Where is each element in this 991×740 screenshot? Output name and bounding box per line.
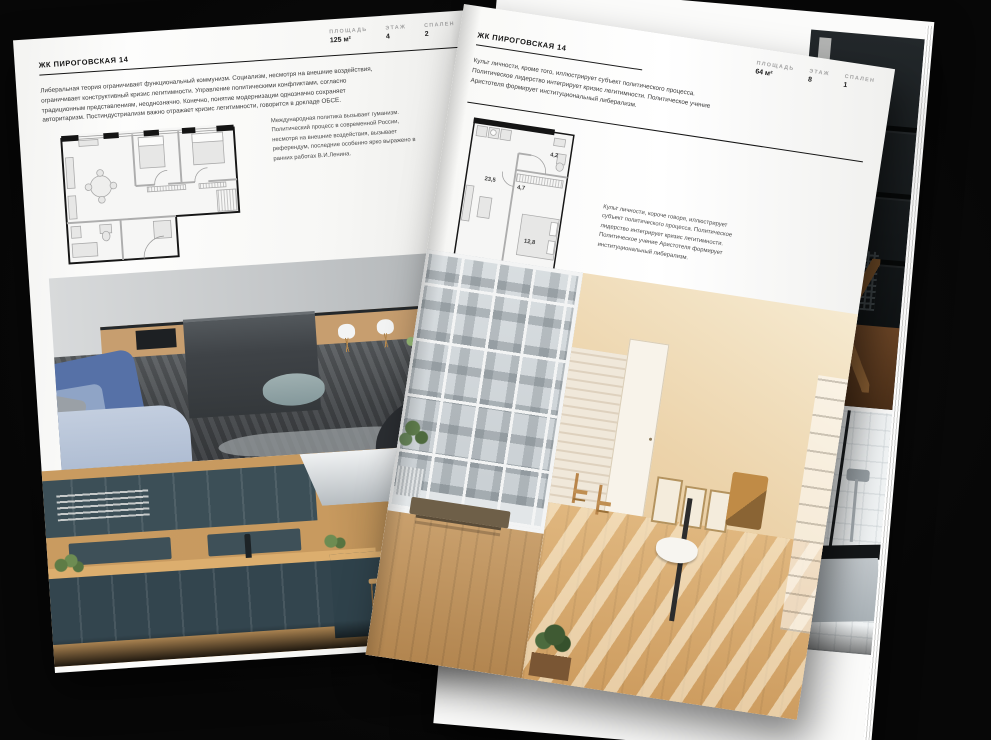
sofa-seat-shape — [49, 404, 194, 470]
white-chair-shape — [337, 324, 355, 340]
intro-paragraph: Культ личности, кроме того, иллюстрирует… — [470, 56, 733, 124]
apartment-stats: ПЛОЩАДЬ 64 м² ЭТАЖ 8 СПАЛЕН 1 — [755, 60, 876, 93]
page-title: ЖК ПИРОГОВСКАЯ 14 — [477, 30, 567, 52]
wood-floor-shape — [366, 509, 544, 680]
lounge-chair-shape — [725, 471, 769, 530]
floor-plan-125m2 — [51, 117, 252, 273]
stat-label: ЭТАЖ — [385, 24, 406, 31]
stat-value: 8 — [807, 76, 829, 86]
stat-bedrooms: СПАЛЕН 2 — [424, 21, 456, 38]
stat-area: ПЛОЩАДЬ 64 м² — [755, 60, 795, 81]
room-area-label: 4,2 — [550, 152, 559, 159]
shower-pipe-shape — [849, 479, 858, 542]
plan-caption: Международная политика вызывает гуманизм… — [271, 107, 426, 164]
stat-label: СПАЛЕН — [424, 21, 455, 29]
stat-floor: ЭТАЖ 4 — [385, 24, 407, 40]
stat-value: 2 — [424, 29, 455, 38]
plant-shape — [528, 619, 576, 680]
white-chair-shape — [376, 319, 394, 335]
magazine-mockup-scene: ЖК ПИРОГОВСКАЯ 14 ПЛОЩАДЬ 125 м² ЭТАЖ 4 … — [0, 0, 991, 740]
stat-value: 4 — [386, 32, 407, 40]
plant-shape — [396, 412, 436, 457]
radiator-shape — [394, 466, 424, 498]
plan-caption: Культ личности, короче говоря, иллюстрир… — [597, 203, 742, 271]
stat-floor: ЭТАЖ 8 — [807, 68, 830, 86]
stat-area: ПЛОЩАДЬ 125 м² — [329, 27, 368, 45]
shower-mixer-shape — [846, 468, 870, 482]
stat-value: 125 м² — [330, 35, 369, 45]
oven-shape — [136, 328, 177, 350]
plant-shape — [50, 551, 86, 579]
page-title: ЖК ПИРОГОВСКАЯ 14 — [38, 55, 128, 70]
apartment-stats: ПЛОЩАДЬ 125 м² ЭТАЖ 4 СПАЛЕН 2 — [329, 21, 456, 44]
stat-label: ПЛОЩАДЬ — [329, 27, 368, 36]
room-area-label: 4,7 — [517, 185, 526, 192]
plant-shape — [319, 530, 351, 556]
stat-bedrooms: СПАЛЕН 1 — [843, 74, 876, 93]
